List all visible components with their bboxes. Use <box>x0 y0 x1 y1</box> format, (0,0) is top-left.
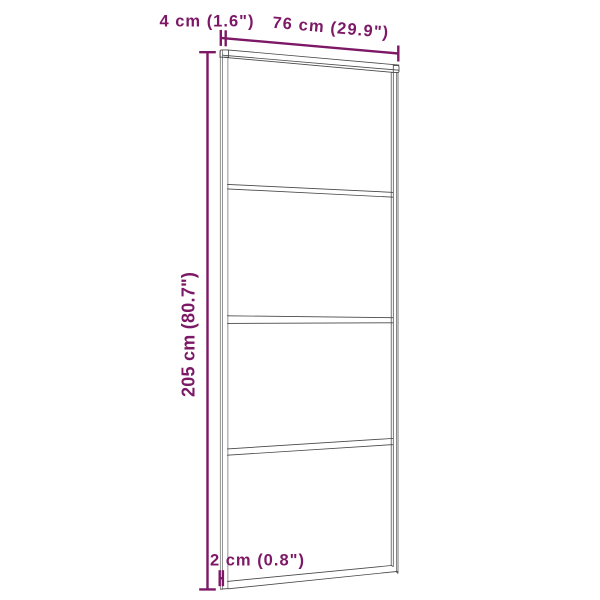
svg-text:4 cm (1.6"): 4 cm (1.6") <box>160 13 255 31</box>
svg-text:2 cm (0.8"): 2 cm (0.8") <box>210 551 305 569</box>
svg-text:205 cm (80.7"): 205 cm (80.7") <box>178 272 198 397</box>
